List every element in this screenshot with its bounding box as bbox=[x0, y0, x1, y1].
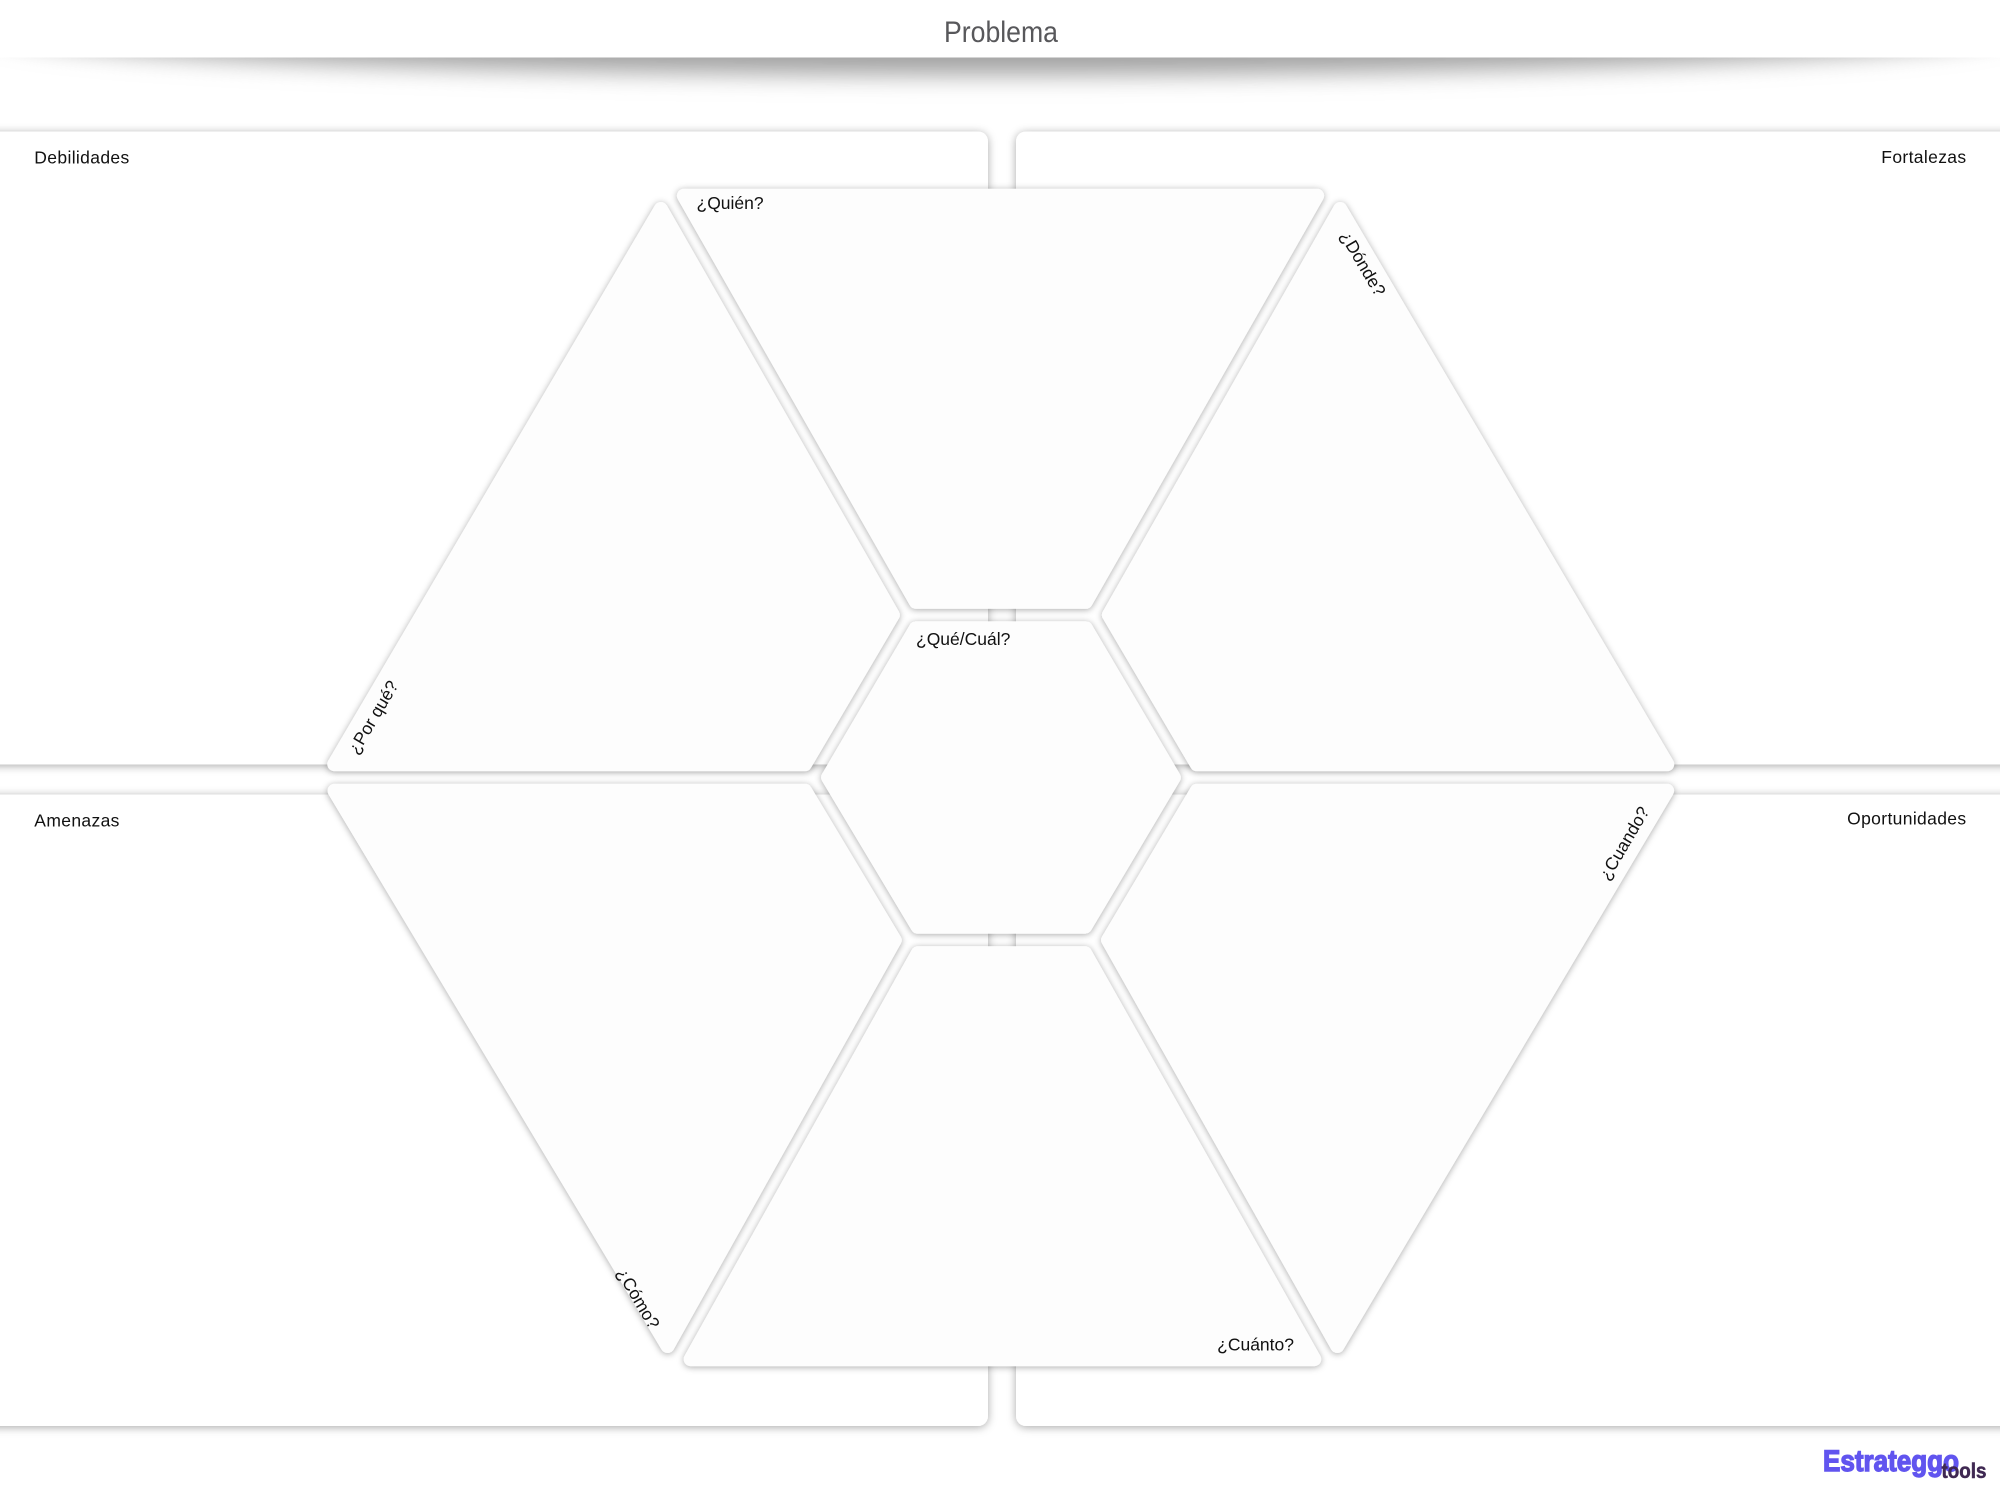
svg-text:Estrateggo: Estrateggo bbox=[1823, 1445, 1959, 1478]
svg-text:Debilidades: Debilidades bbox=[34, 148, 129, 168]
svg-text:¿Qué/Cuál?: ¿Qué/Cuál? bbox=[916, 629, 1011, 649]
svg-text:Fortalezas: Fortalezas bbox=[1881, 147, 1966, 167]
svg-text:¿Cuánto?: ¿Cuánto? bbox=[1217, 1335, 1294, 1355]
svg-text:Oportunidades: Oportunidades bbox=[1847, 809, 1966, 829]
svg-text:Problema: Problema bbox=[944, 16, 1058, 49]
svg-text:tools: tools bbox=[1942, 1460, 1987, 1483]
svg-text:Amenazas: Amenazas bbox=[34, 811, 119, 831]
svg-text:¿Quién?: ¿Quién? bbox=[697, 193, 764, 213]
